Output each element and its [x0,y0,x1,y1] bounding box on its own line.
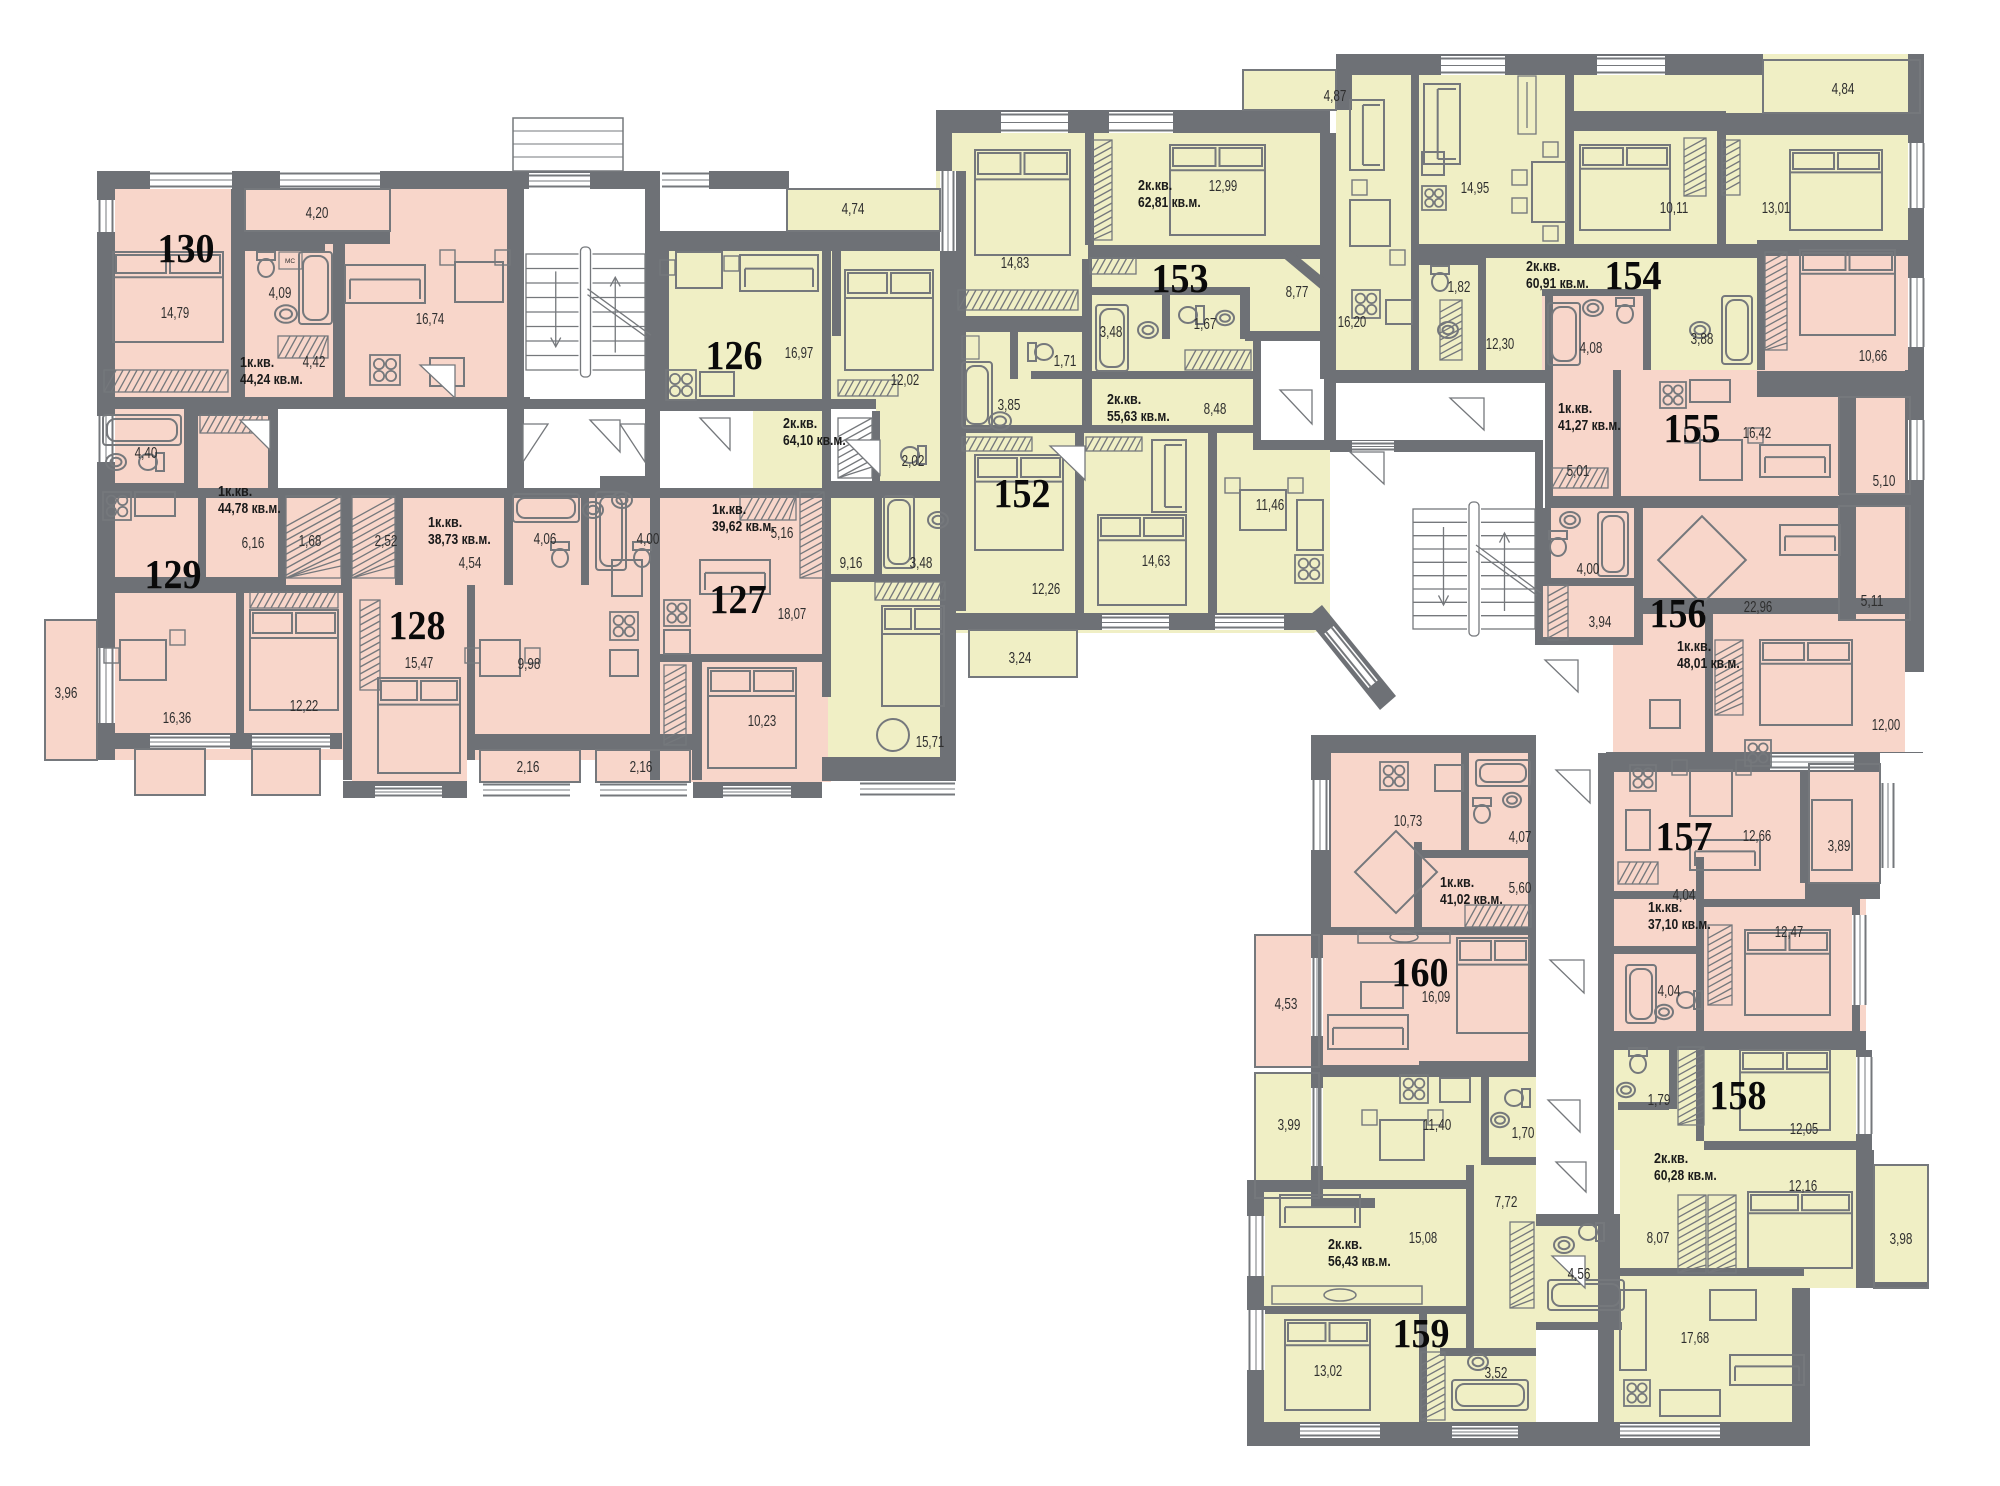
svg-text:4,00: 4,00 [1577,561,1600,578]
svg-text:7,72: 7,72 [1495,1194,1518,1211]
svg-text:12,02: 12,02 [891,372,920,389]
svg-text:1,67: 1,67 [1194,316,1217,333]
svg-text:12,26: 12,26 [1032,581,1061,598]
svg-text:1,68: 1,68 [299,533,322,550]
svg-text:12,30: 12,30 [1486,336,1515,353]
svg-text:8,48: 8,48 [1204,401,1227,418]
svg-text:12,00: 12,00 [1872,717,1901,734]
svg-text:12,05: 12,05 [1790,1121,1819,1138]
svg-text:1к.кв.: 1к.кв. [218,483,252,500]
svg-text:11,40: 11,40 [1423,1117,1452,1134]
svg-text:5,60: 5,60 [1509,880,1532,897]
svg-text:14,83: 14,83 [1001,255,1030,272]
svg-text:60,91 кв.м.: 60,91 кв.м. [1526,275,1589,292]
svg-text:41,27 кв.м.: 41,27 кв.м. [1558,417,1621,434]
svg-text:3,99: 3,99 [1278,1117,1301,1134]
svg-text:12,99: 12,99 [1209,178,1238,195]
svg-text:3,24: 3,24 [1009,650,1032,667]
svg-text:4,40: 4,40 [135,445,158,462]
svg-text:154: 154 [1605,252,1662,298]
svg-text:3,85: 3,85 [998,397,1021,414]
svg-text:1к.кв.: 1к.кв. [1558,400,1592,417]
svg-text:3,48: 3,48 [1100,324,1123,341]
svg-text:2к.кв.: 2к.кв. [783,415,817,432]
svg-text:10,73: 10,73 [1394,813,1423,830]
svg-text:159: 159 [1393,1310,1450,1356]
svg-text:4,09: 4,09 [269,285,292,302]
svg-text:3,52: 3,52 [1485,1365,1508,1382]
svg-text:15,71: 15,71 [916,734,945,751]
svg-text:4,07: 4,07 [1509,829,1532,846]
svg-text:18,07: 18,07 [778,606,807,623]
svg-text:2,16: 2,16 [630,759,653,776]
svg-text:5,16: 5,16 [771,525,794,542]
svg-text:13,02: 13,02 [1314,1363,1343,1380]
svg-text:16,74: 16,74 [416,311,445,328]
svg-text:3,48: 3,48 [910,555,933,572]
svg-text:4,87: 4,87 [1324,88,1347,105]
svg-text:12,16: 12,16 [1789,1178,1818,1195]
svg-text:2,16: 2,16 [517,759,540,776]
svg-text:1к.кв.: 1к.кв. [712,501,746,518]
svg-text:15,08: 15,08 [1409,1230,1438,1247]
svg-text:14,95: 14,95 [1461,180,1490,197]
svg-text:4,56: 4,56 [1568,1266,1591,1283]
svg-text:5,11: 5,11 [1861,593,1884,610]
svg-text:13,01: 13,01 [1762,200,1791,217]
svg-text:4,04: 4,04 [1673,887,1696,904]
svg-text:5,10: 5,10 [1873,473,1896,490]
svg-text:39,62 кв.м.: 39,62 кв.м. [712,518,775,535]
svg-text:10,11: 10,11 [1660,200,1689,217]
svg-text:1,70: 1,70 [1512,1125,1535,1142]
svg-text:4,84: 4,84 [1832,81,1855,98]
svg-text:48,01 кв.м.: 48,01 кв.м. [1677,655,1740,672]
svg-text:22,96: 22,96 [1744,599,1773,616]
svg-text:1к.кв.: 1к.кв. [1677,638,1711,655]
svg-text:44,24 кв.м.: 44,24 кв.м. [240,371,303,388]
svg-text:16,36: 16,36 [163,710,192,727]
svg-text:4,04: 4,04 [1658,983,1681,1000]
svg-text:16,42: 16,42 [1743,425,1772,442]
svg-text:55,63 кв.м.: 55,63 кв.м. [1107,408,1170,425]
svg-text:2к.кв.: 2к.кв. [1526,258,1560,275]
svg-text:156: 156 [1650,590,1707,636]
svg-text:9,16: 9,16 [840,555,863,572]
svg-text:2,02: 2,02 [902,453,925,470]
svg-text:62,81 кв.м.: 62,81 кв.м. [1138,194,1201,211]
svg-text:3,89: 3,89 [1828,838,1851,855]
svg-text:16,97: 16,97 [785,345,814,362]
svg-text:4,74: 4,74 [842,201,865,218]
svg-text:8,77: 8,77 [1286,284,1309,301]
svg-text:130: 130 [158,225,215,271]
svg-text:МС: МС [285,258,295,265]
svg-text:4,53: 4,53 [1275,996,1298,1013]
svg-text:4,42: 4,42 [303,354,326,371]
svg-text:38,73 кв.м.: 38,73 кв.м. [428,531,491,548]
svg-text:14,79: 14,79 [161,305,190,322]
svg-text:56,43 кв.м.: 56,43 кв.м. [1328,1253,1391,1270]
svg-text:15,47: 15,47 [405,655,434,672]
svg-text:6,16: 6,16 [242,535,265,552]
svg-text:1,79: 1,79 [1648,1092,1671,1109]
svg-text:12,66: 12,66 [1743,828,1772,845]
svg-text:2,52: 2,52 [375,533,398,550]
svg-text:155: 155 [1664,405,1721,451]
svg-text:128: 128 [389,602,446,648]
svg-text:152: 152 [994,470,1051,516]
svg-text:10,66: 10,66 [1859,348,1888,365]
svg-text:14,63: 14,63 [1142,553,1171,570]
svg-text:4,20: 4,20 [306,205,329,222]
svg-text:4,00: 4,00 [637,531,660,548]
svg-text:16,09: 16,09 [1422,989,1451,1006]
svg-text:2к.кв.: 2к.кв. [1138,177,1172,194]
svg-text:17,68: 17,68 [1681,1330,1710,1347]
svg-text:41,02 кв.м.: 41,02 кв.м. [1440,891,1503,908]
svg-text:37,10 кв.м.: 37,10 кв.м. [1648,916,1711,933]
svg-text:8,07: 8,07 [1647,1230,1670,1247]
svg-text:3,88: 3,88 [1691,331,1714,348]
svg-text:153: 153 [1152,255,1209,301]
svg-text:4,06: 4,06 [534,531,557,548]
svg-text:64,10 кв.м.: 64,10 кв.м. [783,432,846,449]
svg-text:1,71: 1,71 [1054,353,1077,370]
svg-text:158: 158 [1710,1072,1767,1118]
svg-text:4,08: 4,08 [1580,340,1603,357]
svg-text:3,94: 3,94 [1589,614,1612,631]
svg-text:1к.кв.: 1к.кв. [240,354,274,371]
svg-text:126: 126 [706,332,763,378]
svg-text:4,54: 4,54 [459,555,482,572]
svg-text:5,01: 5,01 [1567,463,1590,480]
svg-text:2к.кв.: 2к.кв. [1328,1236,1362,1253]
svg-text:157: 157 [1656,813,1713,859]
svg-text:1к.кв.: 1к.кв. [428,514,462,531]
svg-text:60,28 кв.м.: 60,28 кв.м. [1654,1167,1717,1184]
svg-text:44,78 кв.м.: 44,78 кв.м. [218,500,281,517]
svg-text:9,98: 9,98 [518,656,541,673]
svg-text:10,23: 10,23 [748,713,777,730]
svg-text:129: 129 [145,551,202,597]
svg-text:2к.кв.: 2к.кв. [1654,1150,1688,1167]
svg-text:12,22: 12,22 [290,698,319,715]
svg-text:2к.кв.: 2к.кв. [1107,391,1141,408]
svg-text:16,20: 16,20 [1338,314,1367,331]
svg-text:12,47: 12,47 [1775,924,1804,941]
svg-text:3,98: 3,98 [1890,1231,1913,1248]
svg-text:1,82: 1,82 [1448,279,1471,296]
svg-text:1к.кв.: 1к.кв. [1440,874,1474,891]
svg-text:3,96: 3,96 [55,685,78,702]
svg-text:11,46: 11,46 [1256,497,1285,514]
svg-text:127: 127 [710,576,767,622]
